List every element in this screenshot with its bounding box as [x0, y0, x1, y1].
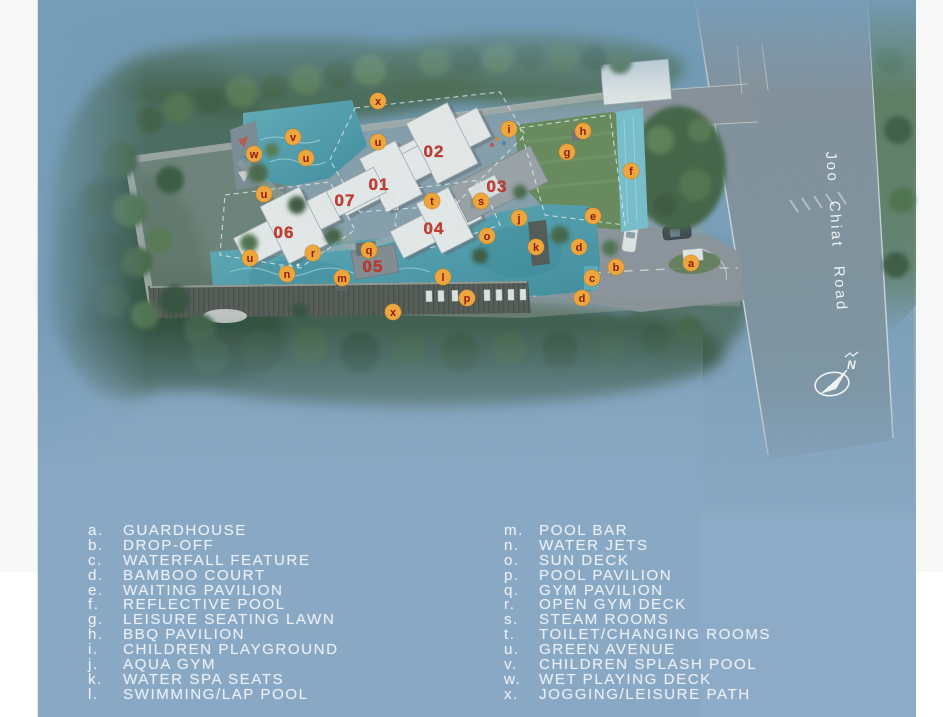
amenity-marker-letter-f: f [629, 166, 633, 178]
north-label: N [847, 358, 856, 372]
amenity-marker-letter-u: u [303, 153, 310, 165]
amenity-marker-letter-r: r [311, 248, 316, 260]
legend-key: l. [88, 688, 123, 703]
block-number-05: 05 [363, 257, 384, 276]
amenity-marker-letter-n: n [284, 269, 291, 281]
block-number-01: 01 [369, 175, 390, 194]
amenity-marker-letter-p: p [464, 293, 471, 305]
block-number-02: 02 [424, 142, 445, 161]
amenity-marker-letter-u: u [375, 137, 382, 149]
legend-item-l: l.SWIMMING/LAP POOL [88, 688, 339, 703]
amenity-marker-letter-x: x [390, 307, 397, 319]
amenity-marker-letter-t: t [430, 196, 434, 208]
amenity-marker-letter-m: m [337, 273, 347, 285]
amenity-marker-letter-c: c [589, 273, 595, 285]
amenity-marker-letter-g: g [564, 147, 571, 159]
amenity-marker-letter-o: o [484, 231, 491, 243]
amenity-marker-letter-a: a [688, 258, 695, 270]
amenity-marker-letter-u: u [247, 253, 254, 265]
legend-label: JOGGING/LEISURE PATH [539, 688, 751, 703]
amenity-marker-letter-k: k [533, 242, 540, 254]
amenity-marker-letter-s: s [478, 196, 484, 208]
amenity-marker-letter-e: e [590, 211, 596, 223]
block-number-07: 07 [335, 191, 356, 210]
amenity-marker-letter-u: u [261, 189, 268, 201]
amenity-marker-letter-l: l [441, 272, 444, 284]
legend-key: x. [504, 688, 539, 703]
amenity-marker-letter-q: q [366, 245, 373, 257]
amenity-marker-letter-x: x [375, 96, 382, 108]
legend-item-x: x.JOGGING/LEISURE PATH [504, 688, 771, 703]
brochure-page: 01020304050607 xvuwuihgfutsejokdqruabnlm… [0, 0, 943, 717]
amenity-marker-letter-v: v [290, 132, 297, 144]
amenity-marker-letter-h: h [580, 126, 587, 138]
amenity-marker-letter-i: i [507, 124, 510, 136]
amenity-marker-letter-j: j [516, 213, 520, 225]
block-number-03: 03 [487, 177, 508, 196]
legend-label: SWIMMING/LAP POOL [123, 688, 309, 703]
block-number-06: 06 [274, 223, 295, 242]
legend-column-right: m.POOL BARn.WATER JETSo.SUN DECKp.POOL P… [504, 524, 771, 703]
amenity-marker-letter-d: d [576, 242, 583, 254]
amenity-marker-letter-d: d [579, 293, 586, 305]
block-number-04: 04 [424, 219, 445, 238]
amenity-marker-letter-w: w [249, 149, 259, 161]
legend-column-left: a.GUARDHOUSEb.DROP-OFFc.WATERFALL FEATUR… [88, 524, 339, 703]
amenity-marker-letter-b: b [613, 262, 620, 274]
